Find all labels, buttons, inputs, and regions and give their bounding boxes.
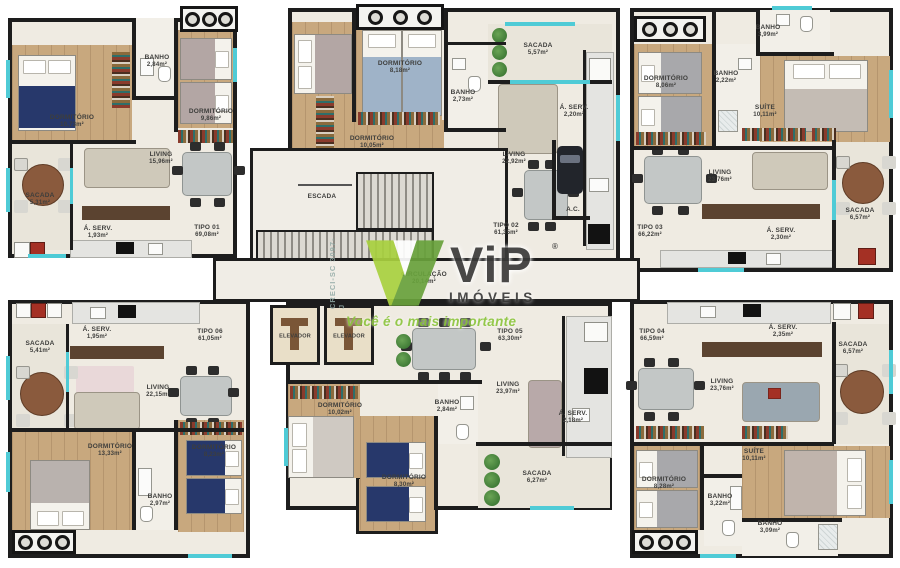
window bbox=[832, 180, 836, 220]
room-area: 22,92m² bbox=[502, 159, 526, 167]
room-label-dormitorio: DORMITÓRIO9,86m² bbox=[189, 108, 233, 124]
room-area: 3,99m² bbox=[756, 32, 781, 40]
window bbox=[66, 352, 69, 392]
single-bed bbox=[186, 478, 242, 514]
room-label-aserv: Á. SERV.2,18m² bbox=[559, 410, 588, 426]
stairs-label: ESCADA bbox=[308, 193, 337, 201]
window bbox=[530, 506, 574, 510]
blanket bbox=[661, 97, 701, 137]
stove-icon bbox=[584, 368, 608, 394]
bedroom-floor bbox=[178, 420, 244, 532]
circle-icon bbox=[417, 10, 432, 25]
plant-icon bbox=[484, 454, 500, 470]
wall bbox=[132, 18, 136, 100]
room-name: ESCADA bbox=[308, 193, 337, 201]
room-area: 10,05m² bbox=[350, 143, 394, 151]
unit-type-label: TIPO 0563,30m² bbox=[497, 328, 523, 344]
circle-icon bbox=[55, 535, 70, 550]
room-area: 8,23m² bbox=[192, 452, 236, 460]
tv-bench bbox=[82, 206, 170, 220]
pillow bbox=[48, 60, 71, 74]
window bbox=[6, 60, 10, 98]
wall bbox=[12, 428, 244, 432]
room-label-living: LIVING15,96m² bbox=[149, 151, 173, 167]
room-label-banho: BANHO3,99m² bbox=[756, 24, 781, 40]
window bbox=[700, 554, 736, 558]
room-label-dormitorio: DORMITÓRIO8,28m² bbox=[642, 476, 686, 492]
balcony-chair bbox=[836, 156, 850, 169]
circle-icon bbox=[393, 10, 408, 25]
room-name: ELEVADOR bbox=[279, 334, 311, 341]
sofa bbox=[498, 84, 558, 154]
pillow bbox=[408, 34, 436, 48]
bookshelf bbox=[112, 52, 130, 108]
double-bed bbox=[288, 416, 354, 478]
room-area: 3,09m² bbox=[758, 528, 783, 536]
wall bbox=[476, 442, 612, 446]
kitchen-sink bbox=[589, 178, 609, 192]
blanket bbox=[785, 89, 867, 131]
v-glyph-icon bbox=[366, 240, 444, 306]
room-area: 8,28m² bbox=[642, 484, 686, 492]
circle-icon bbox=[185, 12, 200, 27]
window bbox=[889, 70, 893, 118]
room-label-dormitorio: DORMITÓRIO8,18m² bbox=[378, 60, 422, 76]
room-label-sacada: SACADA6,27m² bbox=[522, 470, 551, 486]
room-name: DORMITÓRIO bbox=[382, 474, 426, 482]
room-name: DORMITÓRIO bbox=[378, 60, 422, 68]
dining-table bbox=[644, 156, 702, 204]
room-label-aserv: Á. SERV.2,30m² bbox=[767, 227, 796, 243]
dining-chair bbox=[186, 366, 197, 375]
vent-circles bbox=[632, 530, 698, 554]
room-label-sacada: SACADA5,41m² bbox=[25, 340, 54, 356]
room-label-banho: BANHO2,73m² bbox=[451, 89, 476, 105]
room-name: DORMITÓRIO bbox=[644, 75, 688, 83]
room-area: 1,95m² bbox=[83, 334, 112, 342]
circle-icon bbox=[642, 22, 657, 37]
window bbox=[698, 268, 744, 272]
room-area: 10,11m² bbox=[742, 456, 765, 464]
brand-text: ViP bbox=[450, 240, 533, 290]
room-name: Á. SERV. bbox=[560, 104, 589, 112]
unit-area: 66,22m² bbox=[637, 232, 663, 240]
wall bbox=[832, 322, 836, 444]
room-area: 5,31m² bbox=[25, 200, 54, 208]
bathroom-sink bbox=[460, 396, 474, 410]
room-area: 23,97m² bbox=[496, 389, 520, 397]
sofa bbox=[74, 392, 140, 430]
room-area: 6,57m² bbox=[838, 349, 867, 357]
room-name: BANHO bbox=[708, 493, 733, 501]
wall bbox=[174, 420, 178, 530]
room-name: SACADA bbox=[523, 42, 552, 50]
room-name: DORMITÓRIO bbox=[88, 443, 132, 451]
room-area: 13,33m² bbox=[88, 451, 132, 459]
window bbox=[889, 350, 893, 394]
window bbox=[889, 460, 893, 504]
toilet-icon bbox=[786, 532, 799, 548]
blanket bbox=[181, 39, 215, 79]
circle-icon bbox=[658, 535, 673, 550]
wall bbox=[448, 42, 506, 45]
room-area: 23,76m² bbox=[710, 386, 734, 394]
pillow bbox=[641, 109, 655, 126]
pillow bbox=[639, 502, 653, 518]
bookshelf bbox=[290, 386, 358, 399]
vent-circles bbox=[12, 530, 76, 554]
unit-type-label: TIPO 0169,08m² bbox=[194, 224, 220, 240]
wall bbox=[444, 8, 448, 132]
washer-icon bbox=[833, 303, 851, 320]
dining-table bbox=[182, 152, 232, 196]
single-bed bbox=[366, 486, 426, 522]
room-area: 5,57m² bbox=[523, 50, 552, 58]
room-label-aserv: Á. SERV.2,20m² bbox=[560, 104, 589, 120]
room-area: 2,18m² bbox=[559, 418, 588, 426]
dining-chair bbox=[644, 358, 655, 367]
shower-icon bbox=[818, 524, 838, 550]
bookshelf bbox=[742, 426, 788, 439]
tv-bench bbox=[70, 346, 164, 359]
room-area: 22,15m² bbox=[146, 392, 170, 400]
unit-type-label: TIPO 0366,22m² bbox=[637, 224, 663, 240]
plant-icon bbox=[492, 45, 507, 60]
room-name: BANHO bbox=[714, 70, 739, 78]
bookshelf bbox=[636, 426, 704, 439]
stove-icon bbox=[588, 224, 610, 244]
plant-icon bbox=[492, 28, 507, 43]
brand-tagline: Você é o mais importante bbox=[346, 314, 516, 329]
room-label-dormitorio: DORMITÓRIO10,05m² bbox=[350, 135, 394, 151]
double-bed bbox=[30, 460, 90, 530]
vent-circles bbox=[356, 4, 444, 30]
vent-circles bbox=[180, 6, 238, 32]
room-area: 10,11m² bbox=[753, 112, 776, 120]
circle-icon bbox=[37, 535, 52, 550]
pillow bbox=[793, 64, 825, 79]
bookshelf bbox=[636, 132, 706, 145]
room-name: DORMITÓRIO bbox=[350, 135, 394, 143]
wall bbox=[634, 146, 834, 150]
wall bbox=[434, 416, 438, 510]
room-area: 2,20m² bbox=[560, 112, 589, 120]
plant-icon bbox=[396, 352, 411, 367]
wall bbox=[132, 432, 136, 530]
room-label-sacada: SACADA6,57m² bbox=[845, 207, 874, 223]
stove-icon bbox=[728, 252, 746, 264]
kitchen-sink bbox=[766, 253, 781, 265]
room-area: 2,73m² bbox=[451, 97, 476, 105]
circle-icon bbox=[218, 12, 233, 27]
wall bbox=[12, 140, 136, 144]
room-area: 2,35m² bbox=[769, 332, 798, 340]
room-name: SACADA bbox=[25, 192, 54, 200]
room-label-banho: BANHO2,84m² bbox=[435, 399, 460, 415]
single-bed bbox=[366, 442, 426, 478]
dining-table bbox=[412, 328, 476, 370]
room-label-dormitorio: DORMITÓRIO8,30m² bbox=[382, 474, 426, 490]
unit-type: TIPO 05 bbox=[497, 328, 523, 336]
brand-subtext: IMÓVEIS bbox=[449, 290, 537, 305]
bathroom-sink bbox=[452, 58, 466, 70]
room-label-banho: BANHO3,09m² bbox=[758, 520, 783, 536]
circle-icon bbox=[676, 535, 691, 550]
unit-area: 61,05m² bbox=[197, 336, 223, 344]
bookshelf bbox=[358, 112, 440, 125]
washer-icon bbox=[16, 303, 31, 318]
room-label-dormitorio: DORMITÓRIO10,73m² bbox=[50, 114, 94, 130]
room-area: 23,76m² bbox=[708, 177, 732, 185]
car-windshield bbox=[560, 155, 580, 163]
kitchen-sink bbox=[90, 307, 106, 319]
room-label-dormitorio: DORMITÓRIO8,06m² bbox=[644, 75, 688, 91]
room-area: 10,73m² bbox=[50, 122, 94, 130]
vent-circles bbox=[634, 16, 706, 42]
balcony-chair bbox=[834, 364, 848, 377]
room-area: 9,86m² bbox=[189, 116, 233, 124]
dining-chair bbox=[190, 142, 201, 151]
circle-icon bbox=[202, 12, 217, 27]
fridge-icon bbox=[589, 58, 611, 82]
pillow bbox=[225, 489, 239, 505]
staircase bbox=[356, 172, 434, 230]
pillow bbox=[62, 511, 84, 526]
room-label-banho: BANHO2,22m² bbox=[714, 70, 739, 86]
room-label-banho: BANHO2,97m² bbox=[148, 493, 173, 509]
room-name: BANHO bbox=[451, 89, 476, 97]
wall bbox=[700, 446, 704, 530]
bookshelf bbox=[178, 130, 233, 143]
bbq-icon bbox=[31, 303, 46, 318]
pillow bbox=[298, 66, 312, 89]
unit-type: TIPO 03 bbox=[637, 224, 663, 232]
bbq-icon bbox=[858, 303, 874, 319]
wall bbox=[634, 442, 834, 446]
room-name: BANHO bbox=[145, 54, 170, 62]
kitchen-counter bbox=[660, 250, 834, 268]
room-label-living: LIVING23,97m² bbox=[496, 381, 520, 397]
window bbox=[6, 356, 10, 400]
room-name: DORMITÓRIO bbox=[50, 114, 94, 122]
blanket bbox=[313, 417, 353, 477]
window bbox=[70, 168, 73, 204]
floor-plan-canvas: DORMITÓRIO10,73m² BANHO2,84m² DORMITÓRIO… bbox=[0, 0, 900, 568]
plant-icon bbox=[484, 490, 500, 506]
room-area: 3,22m² bbox=[708, 501, 733, 509]
bathroom-sink bbox=[738, 58, 752, 70]
plant-icon bbox=[492, 62, 507, 77]
double-bed bbox=[784, 450, 866, 516]
blanket bbox=[315, 35, 351, 93]
bookshelf bbox=[742, 128, 806, 141]
single-bed bbox=[180, 38, 232, 80]
room-area: 8,18m² bbox=[378, 68, 422, 76]
room-label-living: LIVING22,15m² bbox=[146, 384, 170, 400]
room-name: Á. SERV. bbox=[769, 324, 798, 332]
wall bbox=[136, 96, 178, 100]
pillow bbox=[37, 511, 59, 526]
blanket bbox=[657, 491, 697, 527]
ac-label: A.C. bbox=[566, 206, 580, 214]
room-label-aserv: Á. SERV.1,95m² bbox=[83, 326, 112, 342]
wall bbox=[286, 380, 482, 384]
wall bbox=[174, 18, 178, 132]
room-name: SUÍTE bbox=[742, 448, 765, 456]
room-name: SUÍTE bbox=[753, 104, 776, 112]
bookshelf bbox=[316, 96, 334, 154]
unit-area: 66,59m² bbox=[639, 336, 665, 344]
room-label-banho: BANHO3,22m² bbox=[708, 493, 733, 509]
room-label-dormitorio: DORMITÓRIO10,02m² bbox=[318, 402, 362, 418]
double-bed bbox=[784, 60, 868, 132]
pillow bbox=[829, 64, 861, 79]
room-area: 2,22m² bbox=[714, 78, 739, 86]
kitchen-sink bbox=[148, 243, 163, 255]
room-name: BANHO bbox=[148, 493, 173, 501]
stove-icon bbox=[116, 242, 134, 254]
room-name: DORMITÓRIO bbox=[189, 108, 233, 116]
window bbox=[188, 554, 232, 558]
shower-icon bbox=[718, 110, 738, 132]
toilet-icon bbox=[456, 424, 469, 440]
room-name: DORMITÓRIO bbox=[642, 476, 686, 484]
room-name: SACADA bbox=[838, 341, 867, 349]
bbq-icon bbox=[858, 248, 876, 265]
washer-icon bbox=[47, 303, 62, 318]
double-bed bbox=[294, 34, 352, 94]
room-area: 2,97m² bbox=[148, 501, 173, 509]
pillow bbox=[847, 458, 862, 482]
balcony-chair bbox=[14, 158, 28, 171]
blanket bbox=[367, 487, 409, 521]
room-name: DORMITÓRIO bbox=[192, 444, 236, 452]
dining-table bbox=[180, 376, 232, 416]
unit-type: TIPO 06 bbox=[197, 328, 223, 336]
room-area: 8,30m² bbox=[382, 482, 426, 490]
pillow bbox=[292, 449, 307, 473]
room-name: LIVING bbox=[502, 151, 526, 159]
unit-type-label: TIPO 0661,05m² bbox=[197, 328, 223, 344]
room-name: LIVING bbox=[710, 378, 734, 386]
plant-icon bbox=[484, 472, 500, 488]
elevator-label: ELEVADOR bbox=[333, 334, 365, 341]
blanket bbox=[785, 451, 837, 515]
blanket bbox=[31, 461, 89, 503]
unit-type-label: TIPO 0261,35m² bbox=[493, 222, 519, 238]
room-name: ELEVADOR bbox=[333, 334, 365, 341]
room-label-suite: SUÍTE10,11m² bbox=[742, 448, 765, 464]
cushion bbox=[768, 388, 781, 399]
room-area: 15,96m² bbox=[149, 159, 173, 167]
tv-bench bbox=[702, 342, 822, 357]
room-name: Á. SERV. bbox=[83, 326, 112, 334]
room-name: LIVING bbox=[149, 151, 173, 159]
room-name: DORMITÓRIO bbox=[318, 402, 362, 410]
toilet-icon bbox=[800, 16, 813, 32]
pillow bbox=[409, 453, 423, 469]
room-label-sacada: SACADA6,57m² bbox=[838, 341, 867, 357]
room-area: 6,27m² bbox=[522, 478, 551, 486]
window bbox=[284, 428, 288, 466]
wall bbox=[552, 140, 556, 220]
room-area: 10,02m² bbox=[318, 410, 362, 418]
pillow bbox=[847, 485, 862, 509]
window bbox=[505, 22, 575, 26]
room-name: SACADA bbox=[522, 470, 551, 478]
sofa bbox=[742, 382, 820, 422]
circle-icon bbox=[639, 535, 654, 550]
room-label-banho: BANHO2,84m² bbox=[145, 54, 170, 70]
sofa bbox=[528, 380, 562, 448]
unit-type: TIPO 04 bbox=[639, 328, 665, 336]
tv-bench bbox=[702, 204, 820, 219]
room-area: 2,84m² bbox=[145, 62, 170, 70]
blanket bbox=[187, 479, 225, 513]
room-label-living: LIVING23,76m² bbox=[708, 169, 732, 185]
kitchen-sink bbox=[700, 306, 716, 318]
room-area: 2,84m² bbox=[435, 407, 460, 415]
circle-icon bbox=[663, 22, 678, 37]
room-label-suite: SUÍTE10,11m² bbox=[753, 104, 776, 120]
window bbox=[772, 6, 812, 10]
room-label-sacada: SACADA5,57m² bbox=[523, 42, 552, 58]
single-bed bbox=[636, 490, 698, 528]
window bbox=[616, 95, 620, 141]
pillow bbox=[292, 423, 307, 447]
car-icon bbox=[557, 146, 583, 194]
window bbox=[233, 48, 237, 82]
room-name: BANHO bbox=[435, 399, 460, 407]
room-area: 2,30m² bbox=[767, 235, 796, 243]
circle-icon bbox=[368, 10, 383, 25]
pillow bbox=[298, 40, 312, 63]
pillow bbox=[368, 34, 396, 48]
wall bbox=[704, 474, 742, 478]
stair-direction-arrow bbox=[298, 184, 352, 186]
blanket bbox=[367, 443, 409, 477]
fridge-icon bbox=[584, 322, 608, 342]
room-area: 5,41m² bbox=[25, 348, 54, 356]
room-name: LIVING bbox=[708, 169, 732, 177]
unit-type: TIPO 01 bbox=[194, 224, 220, 232]
window bbox=[28, 254, 66, 258]
plant-icon bbox=[396, 334, 411, 349]
pillow bbox=[23, 60, 46, 74]
room-name: A.C. bbox=[566, 206, 580, 214]
window bbox=[510, 80, 590, 84]
unit-area: 63,30m² bbox=[497, 336, 523, 344]
dining-table bbox=[638, 368, 694, 410]
sofa bbox=[752, 152, 828, 190]
circle-icon bbox=[18, 535, 33, 550]
registered-mark: ® bbox=[552, 242, 558, 251]
wall bbox=[562, 316, 565, 456]
unit-type-label: TIPO 0466,59m² bbox=[639, 328, 665, 344]
unit-area: 69,08m² bbox=[194, 232, 220, 240]
room-name: Á. SERV. bbox=[767, 227, 796, 235]
room-name: LIVING bbox=[496, 381, 520, 389]
window bbox=[6, 168, 10, 212]
wall bbox=[756, 52, 834, 56]
room-name: BANHO bbox=[756, 24, 781, 32]
balcony-chair bbox=[16, 366, 30, 379]
room-label-aserv: Á. SERV.2,35m² bbox=[769, 324, 798, 340]
room-area: 8,06m² bbox=[644, 83, 688, 91]
pillow bbox=[215, 51, 229, 68]
room-label-living: LIVING23,76m² bbox=[710, 378, 734, 394]
room-label-living: LIVING22,92m² bbox=[502, 151, 526, 167]
